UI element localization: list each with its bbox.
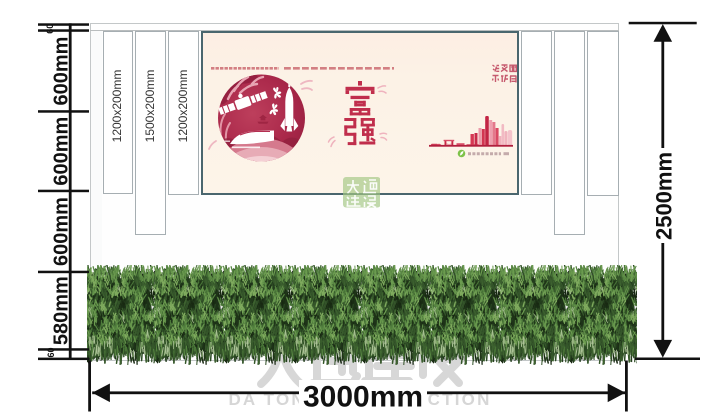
svg-text:2500mm: 2500mm (652, 152, 677, 240)
svg-text:3000mm: 3000mm (303, 381, 423, 414)
svg-text:60: 60 (46, 347, 56, 357)
svg-text:580mm: 580mm (51, 276, 73, 345)
svg-text:600mm: 600mm (51, 37, 73, 106)
svg-text:600mm: 600mm (51, 117, 73, 186)
svg-text:60: 60 (45, 24, 55, 34)
svg-text:600mm: 600mm (51, 197, 73, 266)
